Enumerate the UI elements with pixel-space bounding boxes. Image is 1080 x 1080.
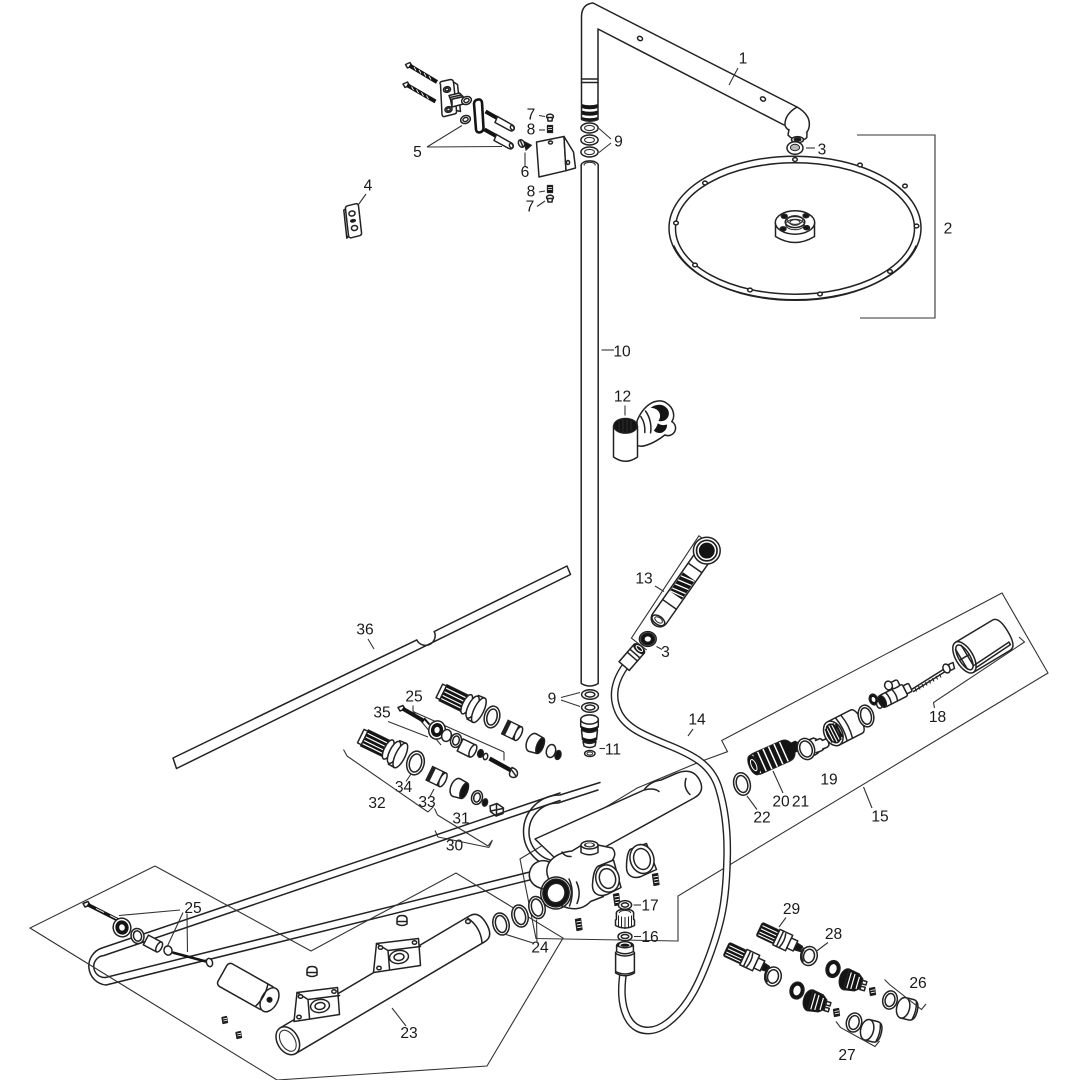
svg-text:2: 2 (944, 221, 953, 238)
svg-text:18: 18 (929, 709, 946, 726)
svg-text:14: 14 (688, 712, 706, 729)
svg-text:26: 26 (909, 975, 926, 992)
svg-text:36: 36 (356, 622, 373, 639)
svg-text:29: 29 (783, 901, 800, 918)
svg-text:3: 3 (661, 644, 670, 661)
svg-text:8: 8 (527, 122, 536, 139)
svg-text:5: 5 (413, 144, 422, 161)
svg-text:19: 19 (820, 772, 837, 789)
svg-text:3: 3 (818, 142, 827, 159)
svg-text:33: 33 (418, 794, 435, 811)
svg-text:15: 15 (871, 809, 889, 826)
svg-text:20: 20 (772, 794, 790, 811)
svg-text:12: 12 (614, 389, 631, 406)
svg-text:34: 34 (395, 779, 413, 796)
svg-text:10: 10 (613, 344, 631, 361)
svg-text:32: 32 (368, 795, 385, 812)
svg-text:22: 22 (753, 810, 770, 827)
svg-text:11: 11 (605, 742, 621, 759)
svg-text:35: 35 (373, 705, 391, 722)
svg-text:16: 16 (641, 929, 658, 946)
svg-text:21: 21 (792, 794, 809, 811)
svg-text:13: 13 (635, 571, 652, 588)
svg-text:23: 23 (400, 1025, 417, 1042)
svg-text:27: 27 (838, 1047, 855, 1064)
svg-text:25: 25 (405, 689, 423, 706)
svg-text:28: 28 (825, 926, 842, 943)
svg-text:24: 24 (531, 940, 549, 957)
svg-text:1: 1 (739, 51, 748, 68)
svg-text:7: 7 (526, 199, 535, 216)
svg-text:6: 6 (521, 164, 530, 181)
svg-text:9: 9 (614, 134, 623, 151)
svg-text:4: 4 (364, 178, 373, 195)
svg-text:9: 9 (548, 691, 557, 708)
svg-text:17: 17 (641, 898, 658, 915)
